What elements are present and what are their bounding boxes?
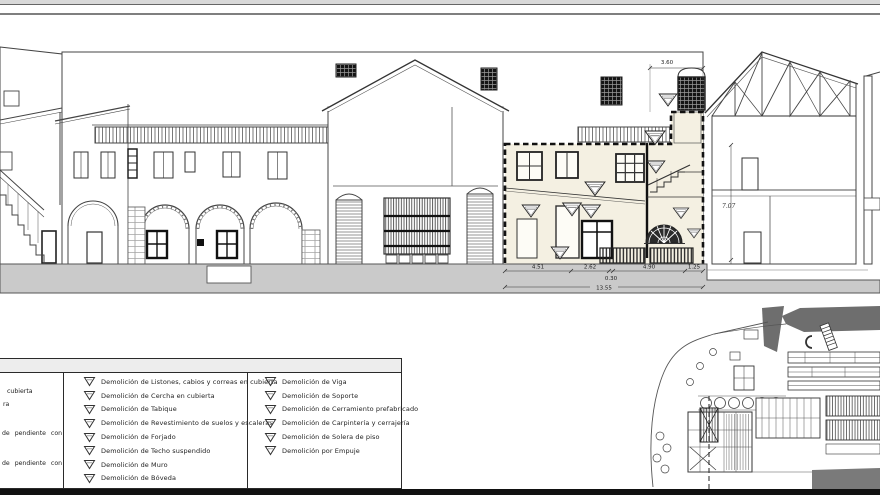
sheet-bottom-border xyxy=(0,489,880,495)
legend-column-2: Demolición de Listones, cabios y correas… xyxy=(83,375,278,485)
legend-fragment: de pendiente con xyxy=(2,430,62,437)
legend-item: Demolición por Empuje xyxy=(264,444,418,458)
dim-seg1: 4.51 xyxy=(532,265,544,271)
left-block-section xyxy=(0,47,62,264)
legend-fragment: ra xyxy=(3,401,9,408)
legend-item-label: Demolición de Carpintería y cerrajería xyxy=(282,419,410,427)
legend-item: Demolición de Revestimiento de suelos y … xyxy=(83,416,278,430)
shed xyxy=(826,444,880,454)
road-band xyxy=(812,468,880,490)
legend-item: Demolición de Solera de piso xyxy=(264,430,418,444)
legend-header xyxy=(0,359,401,373)
balustrade xyxy=(600,248,645,263)
stone-pier xyxy=(128,207,145,264)
legend-item: Demolición de Viga xyxy=(264,375,418,389)
dim-seg2: 2.62 xyxy=(584,265,596,271)
dim-section-height: 7.07 xyxy=(722,203,736,210)
roller-shutter xyxy=(336,194,362,264)
window xyxy=(185,152,195,172)
legend-item: Demolición de Techo suspendido xyxy=(83,444,278,458)
legend-item: Demolición de Listones, cabios y correas… xyxy=(83,375,278,389)
building-rows xyxy=(788,352,880,390)
legend-fragment: de pendiente con xyxy=(2,460,62,467)
dim-seg3: 0.30 xyxy=(605,276,618,282)
tree-cluster xyxy=(653,432,671,473)
shed xyxy=(826,396,880,416)
roof-tile-band xyxy=(95,127,330,143)
demolition-marker-icon xyxy=(83,473,96,484)
legend-item: Demolición de Soporte xyxy=(264,389,418,403)
legend-item-label: Demolición de Soporte xyxy=(282,392,358,400)
legend-item-label: Demolición de Tabique xyxy=(101,405,177,413)
sign xyxy=(197,239,204,246)
demolition-marker-icon xyxy=(264,445,277,456)
door xyxy=(744,232,761,263)
legend-item: Demolición de Bóveda xyxy=(83,472,278,486)
dim-seg5: 1.25 xyxy=(688,265,701,271)
road-band xyxy=(782,306,880,332)
demolition-legend: cubierta ra de pendiente con de pendient… xyxy=(0,358,402,489)
legend-item-label: Demolición por Empuje xyxy=(282,447,360,455)
demolition-marker-icon xyxy=(83,445,96,456)
legend-item: Demolición de Cerramiento prefabricado xyxy=(264,403,418,417)
legend-item-label: Demolición de Revestimiento de suelos y … xyxy=(101,419,273,427)
demolition-marker-icon xyxy=(83,390,96,401)
legend-item-label: Demolición de Viga xyxy=(282,378,347,386)
demolition-marker-icon xyxy=(264,432,277,443)
legend-item-label: Demolición de Solera de piso xyxy=(282,433,380,441)
demolition-marker-icon xyxy=(83,459,96,470)
sheet-frame xyxy=(0,0,880,14)
slatted-gate xyxy=(384,198,450,263)
legend-divider xyxy=(63,372,64,488)
shed xyxy=(826,420,880,440)
dim-total: 13.55 xyxy=(596,286,612,292)
legend-item-label: Demolición de Muro xyxy=(101,461,168,469)
vent-grille xyxy=(336,64,356,77)
roller-shutter xyxy=(467,188,493,264)
legend-item: Demolición de Forjado xyxy=(83,430,278,444)
window xyxy=(742,158,758,190)
legend-column-3: Demolición de Viga Demolición de Soporte… xyxy=(264,375,418,458)
demolition-marker-icon xyxy=(264,404,277,415)
balustrade xyxy=(650,248,693,263)
c-mark xyxy=(806,336,812,348)
door xyxy=(87,232,102,263)
demolition-marker-icon xyxy=(83,432,96,443)
demolition-marker-icon xyxy=(264,390,277,401)
demolition-marker-icon xyxy=(83,404,96,415)
demolition-marker-icon xyxy=(83,418,96,429)
legend-item-label: Demolición de Bóveda xyxy=(101,474,176,482)
legend-item: Demolición de Muro xyxy=(83,458,278,472)
drawing-sheet: 3.60 7.07 4.51 2.62 0.30 4.90 1.25 13.55 xyxy=(0,0,880,495)
legend-item: Demolición de Cercha en cubierta xyxy=(83,389,278,403)
legend-item-label: Demolición de Listones, cabios y correas… xyxy=(101,378,278,386)
dim-tower-width: 3.60 xyxy=(661,60,674,66)
site-plan xyxy=(651,306,880,490)
road-stub xyxy=(762,306,784,352)
legend-item-label: Demolición de Cercha en cubierta xyxy=(101,392,215,400)
legend-item: Demolición de Tabique xyxy=(83,403,278,417)
legend-item-label: Demolición de Forjado xyxy=(101,433,176,441)
ground-band xyxy=(0,264,880,293)
dim-seg4: 4.90 xyxy=(643,265,656,271)
legend-item-label: Demolición de Techo suspendido xyxy=(101,447,210,455)
tower-chimney xyxy=(674,68,705,143)
vent-grille xyxy=(481,68,497,90)
demolition-marker-icon xyxy=(264,376,277,387)
demolition-marker-icon xyxy=(264,418,277,429)
stone-pier xyxy=(302,230,320,264)
legend-item-label: Demolición de Cerramiento prefabricado xyxy=(282,405,418,413)
legend-fragment: cubierta xyxy=(7,388,33,395)
demolition-marker-icon xyxy=(83,376,96,387)
vent-grille xyxy=(601,77,622,105)
legend-item: Demolición de Carpintería y cerrajería xyxy=(264,416,418,430)
